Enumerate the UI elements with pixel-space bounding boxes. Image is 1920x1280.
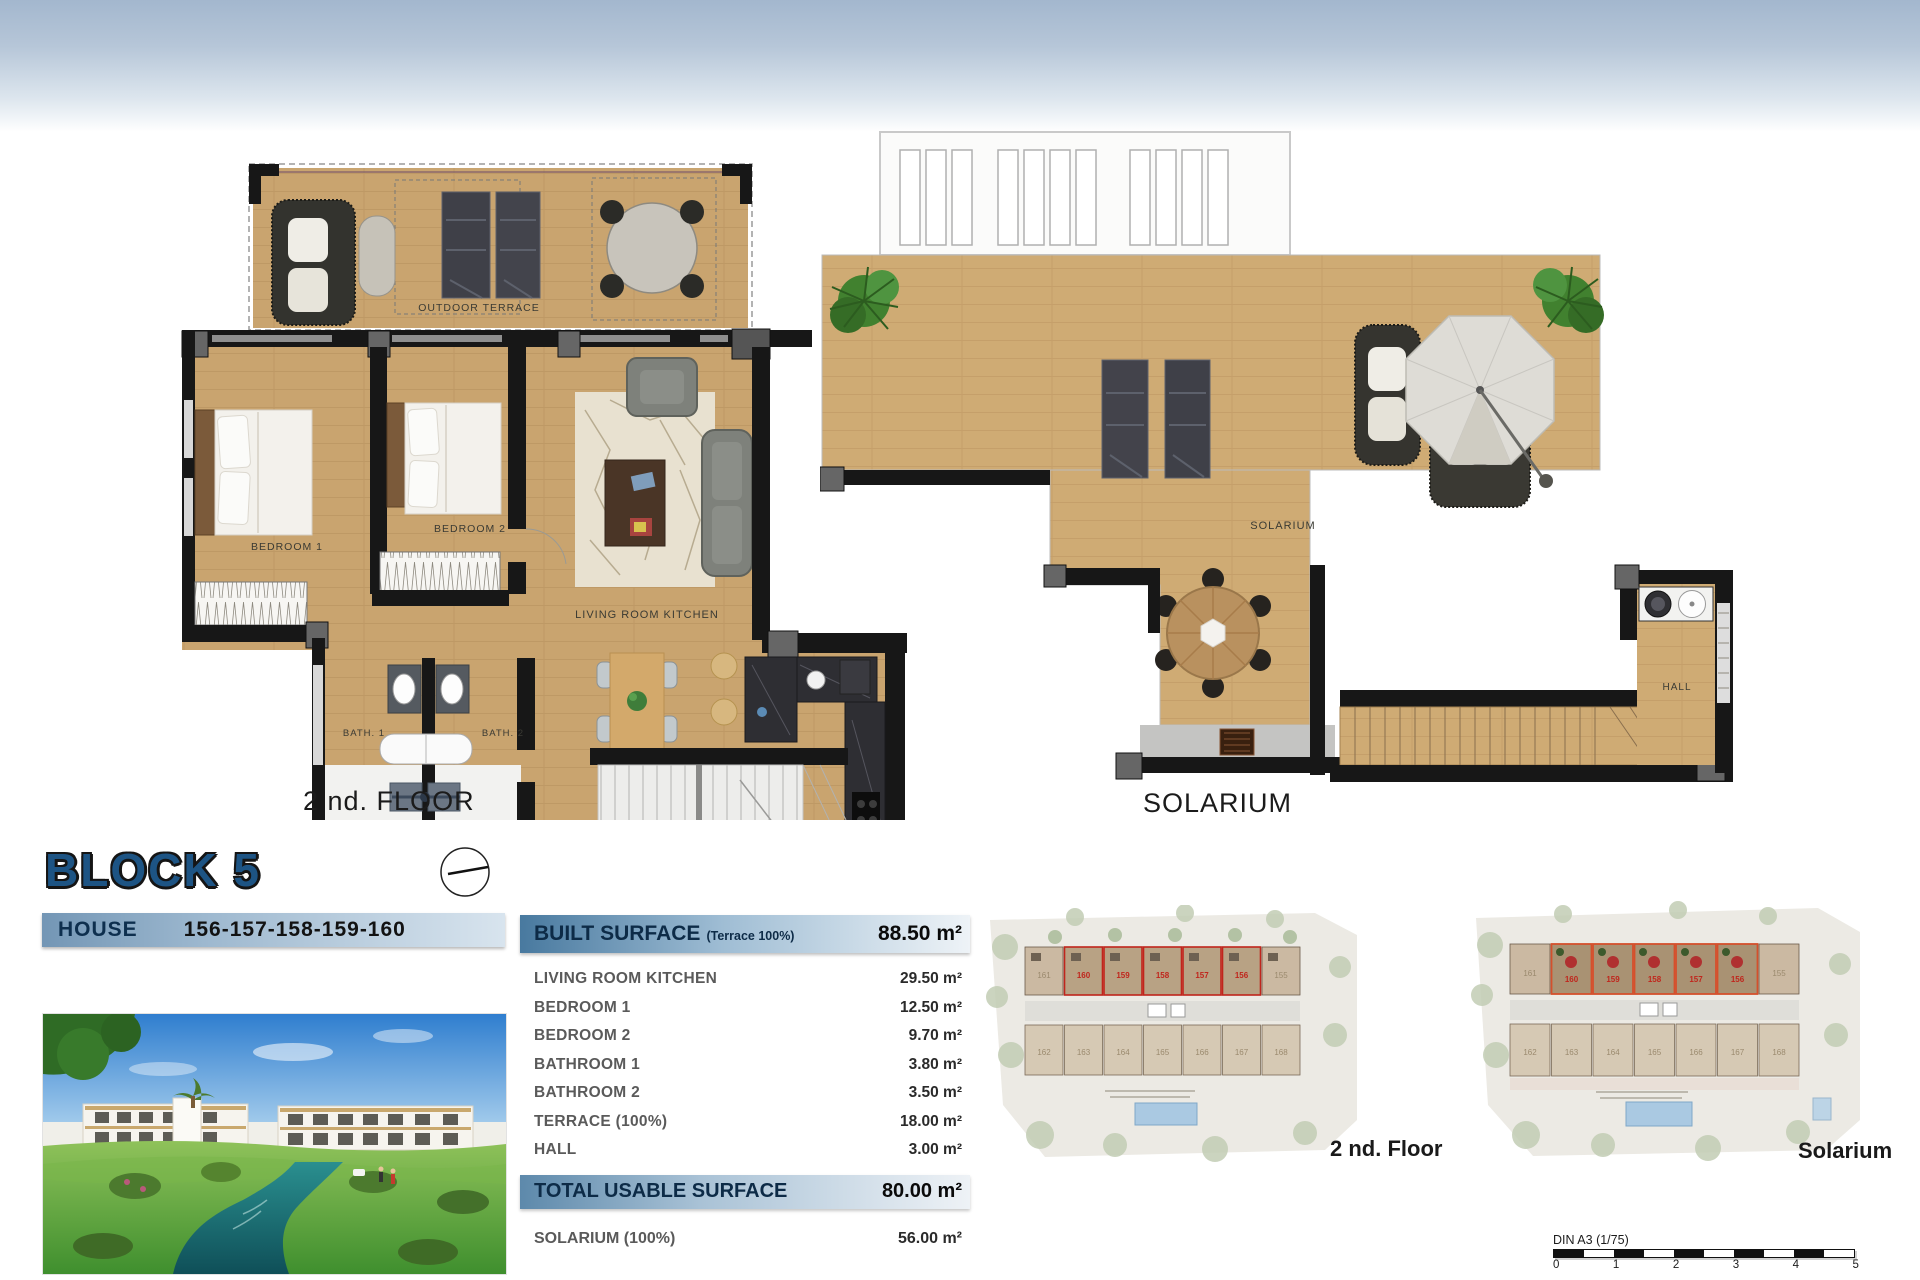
- tick: 2: [1673, 1259, 1679, 1271]
- unit-number: 166: [1689, 1048, 1703, 1057]
- caption-2nd-floor: 2 nd. FLOOR: [303, 786, 475, 817]
- surface-table: BUILT SURFACE (Terrace 100%) 88.50 m² LI…: [520, 915, 970, 1253]
- table-row: BEDROOM 2 9.70 m²: [520, 1022, 970, 1051]
- label-hall: HALL: [1662, 682, 1691, 693]
- unit-number: 167: [1235, 1048, 1249, 1057]
- label-living-room-kitchen: LIVING ROOM KITCHEN: [575, 609, 719, 621]
- unit-number: 157: [1689, 975, 1703, 984]
- unit-number: 162: [1037, 1048, 1051, 1057]
- tick: 0: [1553, 1259, 1559, 1271]
- unit-number: 166: [1195, 1048, 1209, 1057]
- built-surface-header: BUILT SURFACE (Terrace 100%) 88.50 m²: [520, 915, 970, 953]
- unit-number: 156: [1235, 971, 1249, 980]
- unit-row-bottom: 162 163 164 165 166 167 168: [1025, 1025, 1300, 1075]
- built-surface-note: (Terrace 100%): [706, 929, 794, 943]
- house-bar: HOUSE 156-157-158-159-160: [42, 913, 505, 947]
- pool: [1135, 1103, 1197, 1125]
- row-label: BATHROOM 1: [534, 1056, 640, 1074]
- caption-solarium: SOLARIUM: [1143, 788, 1292, 819]
- row-label: BATHROOM 2: [534, 1084, 640, 1102]
- built-surface-label: BUILT SURFACE: [534, 922, 700, 946]
- label-bath1: BATH. 1: [343, 728, 385, 739]
- unit-number: 158: [1648, 975, 1662, 984]
- pergola: [880, 132, 1290, 255]
- solarium-stairs-hall: HALL: [1330, 565, 1733, 782]
- pool: [1626, 1102, 1692, 1126]
- row-value: 9.70 m²: [909, 1027, 962, 1045]
- floor-plan-solarium: SOLARIUM: [820, 125, 1740, 805]
- unit-number: 160: [1565, 975, 1579, 984]
- unit-number: 163: [1565, 1048, 1579, 1057]
- unit-number: 161: [1037, 971, 1051, 980]
- unit-number: 158: [1156, 971, 1170, 980]
- scale-bar: DIN A3 (1/75) 0 1 2 3 4 5: [1553, 1233, 1859, 1271]
- unit-number: 164: [1606, 1048, 1620, 1057]
- unit-number: 160: [1077, 971, 1091, 980]
- total-usable-surface-bar: TOTAL USABLE SURFACE 80.00 m²: [520, 1175, 970, 1209]
- brochure-page: OUTDOOR TERRACE BEDROO: [0, 0, 1920, 1280]
- floor-plan-solarium-svg: SOLARIUM: [820, 125, 1740, 805]
- row-value: 3.80 m²: [909, 1056, 962, 1074]
- unit-number: 168: [1274, 1048, 1288, 1057]
- sky-gradient-banner: [0, 0, 1920, 132]
- bedroom1: BEDROOM 1: [185, 410, 328, 648]
- row-value: 18.00 m²: [900, 1113, 962, 1131]
- block-title: BLOCK 5: [45, 843, 261, 897]
- total-value: 80.00 m²: [882, 1180, 962, 1203]
- row-label: SOLARIUM (100%): [534, 1230, 675, 1248]
- total-label: TOTAL USABLE SURFACE: [534, 1180, 787, 1203]
- table-row: HALL 3.00 m²: [520, 1136, 970, 1165]
- unit-number: 161: [1523, 969, 1537, 978]
- row-label: BEDROOM 2: [534, 1027, 631, 1045]
- scale-bar-ticks: 0 1 2 3 4 5: [1553, 1259, 1859, 1271]
- tick: 1: [1613, 1259, 1619, 1271]
- label-bedroom2: BEDROOM 2: [434, 523, 506, 535]
- floor-plan-2nd-svg: OUTDOOR TERRACE BEDROO: [140, 120, 930, 820]
- row-value: 29.50 m²: [900, 970, 962, 988]
- unit-number: 156: [1731, 975, 1745, 984]
- table-row: TERRACE (100%) 18.00 m²: [520, 1108, 970, 1137]
- unit-row-bottom: 162 163 164 165 166 167 168: [1510, 1024, 1799, 1076]
- siteplan-2nd-floor-label: 2 nd. Floor: [1330, 1136, 1442, 1162]
- row-label: LIVING ROOM KITCHEN: [534, 970, 717, 988]
- unit-row-top: 161 160 159 158 157 156 155: [1510, 944, 1799, 994]
- label-outdoor-terrace: OUTDOOR TERRACE: [418, 302, 540, 314]
- row-label: HALL: [534, 1141, 577, 1159]
- bedroom2: BEDROOM 2: [372, 403, 509, 606]
- row-value: 12.50 m²: [900, 999, 962, 1017]
- unit-number: 167: [1731, 1048, 1745, 1057]
- row-label: BEDROOM 1: [534, 999, 631, 1017]
- unit-number: 155: [1772, 969, 1786, 978]
- unit-number: 165: [1648, 1048, 1662, 1057]
- unit-number: 159: [1116, 971, 1130, 980]
- unit-number: 165: [1156, 1048, 1170, 1057]
- unit-number: 163: [1077, 1048, 1091, 1057]
- unit-number: 164: [1116, 1048, 1130, 1057]
- table-row: BATHROOM 1 3.80 m²: [520, 1051, 970, 1080]
- solarium-lounge-set: [1355, 316, 1554, 507]
- unit-number: 168: [1772, 1048, 1786, 1057]
- built-surface-value: 88.50 m²: [878, 922, 962, 946]
- label-solarium-room: SOLARIUM: [1250, 520, 1315, 532]
- surface-rows: LIVING ROOM KITCHEN 29.50 m² BEDROOM 1 1…: [520, 965, 970, 1165]
- unit-row-top: 161 160 159 158 157 156 155: [1025, 947, 1300, 995]
- siteplan-solarium-label: Solarium: [1798, 1138, 1892, 1164]
- house-numbers: 156-157-158-159-160: [184, 918, 406, 942]
- scale-bar-label: DIN A3 (1/75): [1553, 1233, 1859, 1247]
- siteplan-solarium: 161 160 159 158 157 156 155 162 163: [1468, 900, 1868, 1170]
- unit-number: 155: [1274, 971, 1288, 980]
- tick: 4: [1793, 1259, 1799, 1271]
- outdoor-terrace-area: OUTDOOR TERRACE: [249, 164, 752, 330]
- siteplan-2nd-floor: 161 160 159 158 157 156 155 162: [985, 905, 1360, 1170]
- scale-bar-graphic: [1553, 1249, 1855, 1258]
- table-row: BATHROOM 2 3.50 m²: [520, 1079, 970, 1108]
- row-value: 3.50 m²: [909, 1084, 962, 1102]
- unit-number: 157: [1195, 971, 1209, 980]
- development-photo: [42, 1013, 507, 1275]
- solarium-surface-row: SOLARIUM (100%) 56.00 m²: [520, 1225, 970, 1253]
- label-bedroom1: BEDROOM 1: [251, 541, 323, 553]
- floor-plan-2nd: OUTDOOR TERRACE BEDROO: [140, 120, 930, 820]
- building-right: [278, 1106, 473, 1150]
- row-value: 56.00 m²: [898, 1230, 962, 1248]
- compass-icon: [438, 845, 492, 904]
- table-row: BEDROOM 1 12.50 m²: [520, 994, 970, 1023]
- house-label: HOUSE: [58, 918, 138, 942]
- row-value: 3.00 m²: [909, 1141, 962, 1159]
- unit-number: 162: [1523, 1048, 1537, 1057]
- label-bath2: BATH. 2: [482, 728, 524, 739]
- tick: 5: [1853, 1259, 1859, 1271]
- row-label: TERRACE (100%): [534, 1113, 667, 1131]
- table-row: LIVING ROOM KITCHEN 29.50 m²: [520, 965, 970, 994]
- unit-number: 159: [1606, 975, 1620, 984]
- tick: 3: [1733, 1259, 1739, 1271]
